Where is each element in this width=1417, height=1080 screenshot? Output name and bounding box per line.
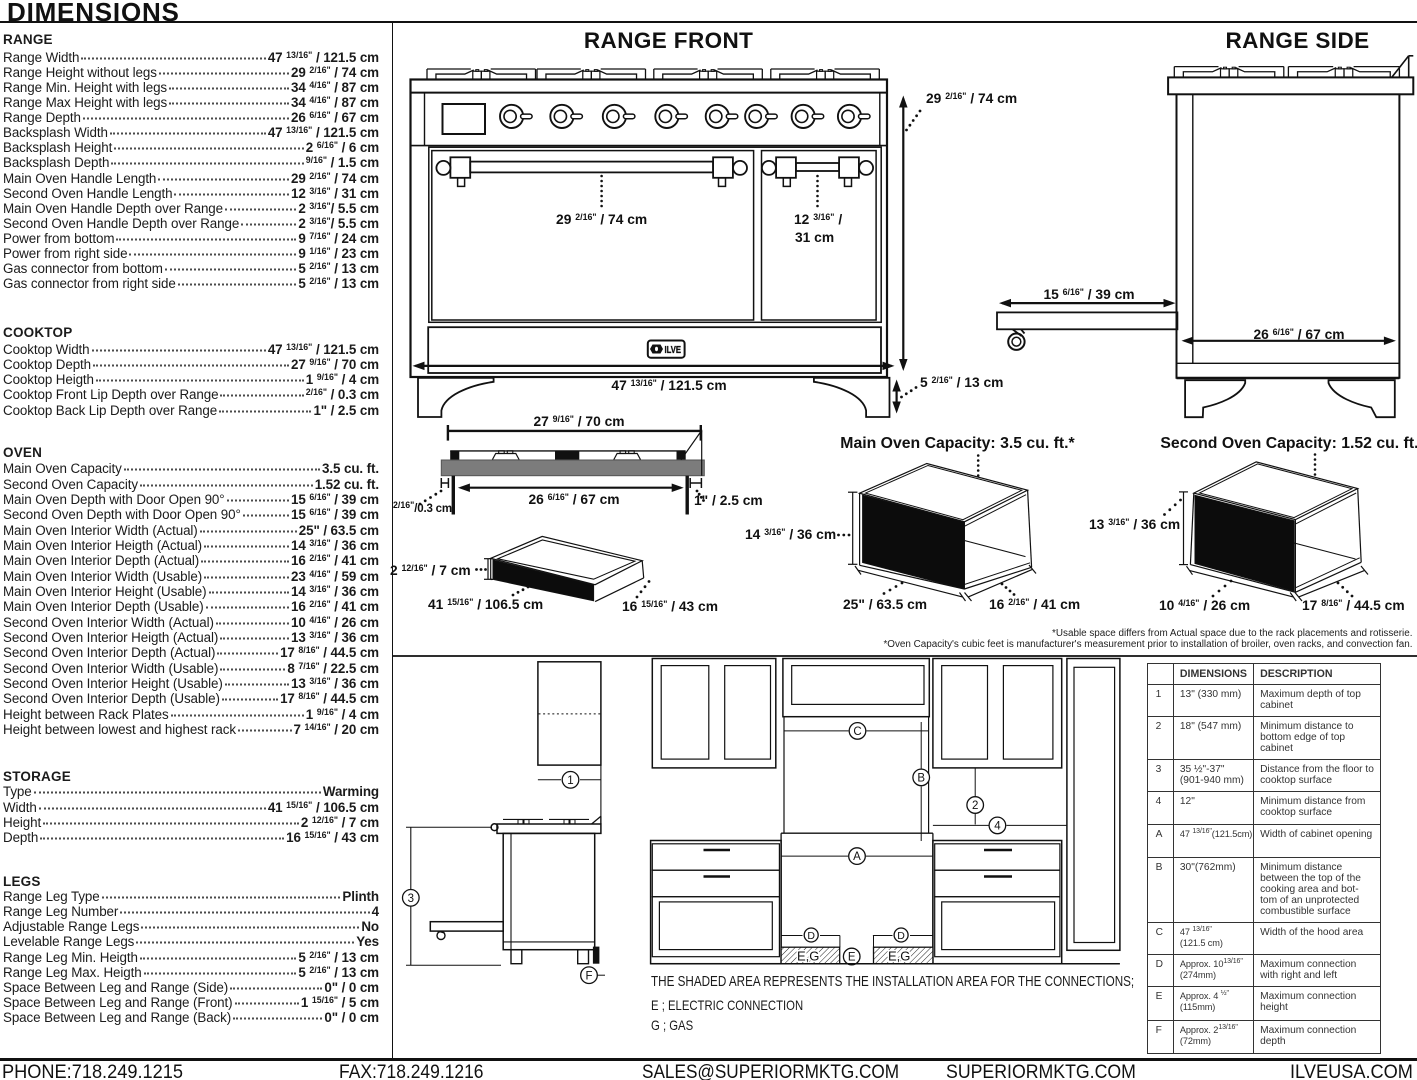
svg-text:E,G: E,G <box>797 949 819 964</box>
svg-text:D: D <box>807 930 815 942</box>
svg-text:E,G: E,G <box>888 949 910 964</box>
svg-text:D: D <box>897 930 905 942</box>
svg-text:3: 3 <box>408 893 414 905</box>
svg-text:F: F <box>585 970 592 982</box>
svg-text:E: E <box>848 952 856 964</box>
svg-text:1: 1 <box>567 775 573 787</box>
svg-text:ILVE: ILVE <box>665 345 682 356</box>
svg-text:B: B <box>917 773 925 785</box>
svg-text:A: A <box>853 851 861 863</box>
svg-text:C: C <box>853 726 861 738</box>
svg-text:2: 2 <box>972 800 978 812</box>
svg-text:4: 4 <box>994 821 1001 833</box>
